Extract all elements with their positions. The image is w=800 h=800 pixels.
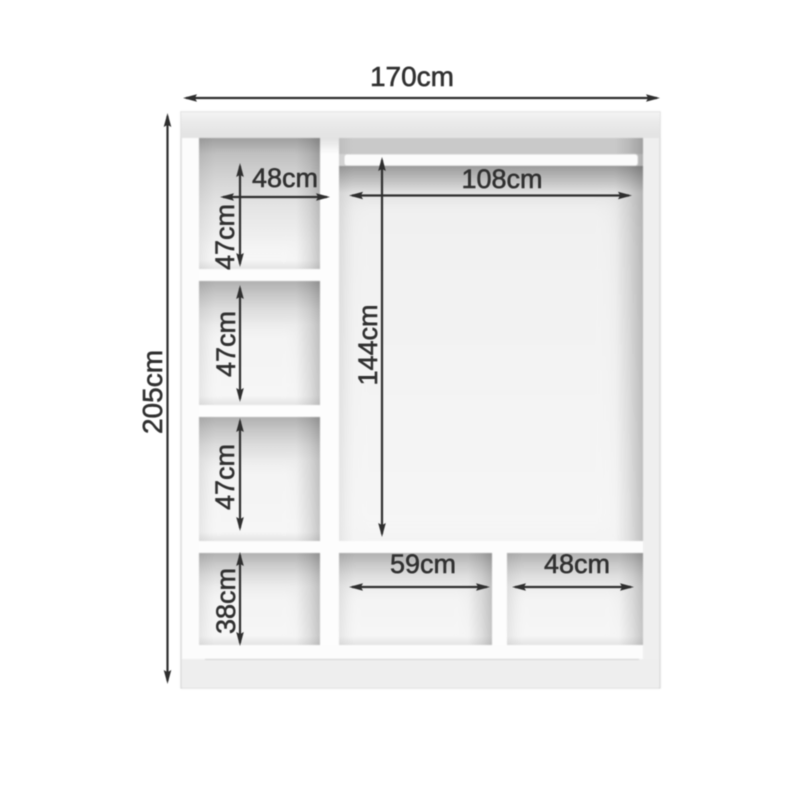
svg-text:48cm: 48cm xyxy=(252,163,318,193)
svg-text:47cm: 47cm xyxy=(210,444,240,510)
svg-text:47cm: 47cm xyxy=(210,204,240,270)
svg-text:59cm: 59cm xyxy=(390,549,456,579)
svg-text:38cm: 38cm xyxy=(211,568,241,634)
svg-text:205cm: 205cm xyxy=(137,350,168,434)
svg-text:47cm: 47cm xyxy=(211,311,241,377)
svg-text:48cm: 48cm xyxy=(544,549,610,579)
svg-text:108cm: 108cm xyxy=(461,164,542,194)
svg-text:170cm: 170cm xyxy=(370,61,454,92)
svg-text:144cm: 144cm xyxy=(353,304,383,385)
